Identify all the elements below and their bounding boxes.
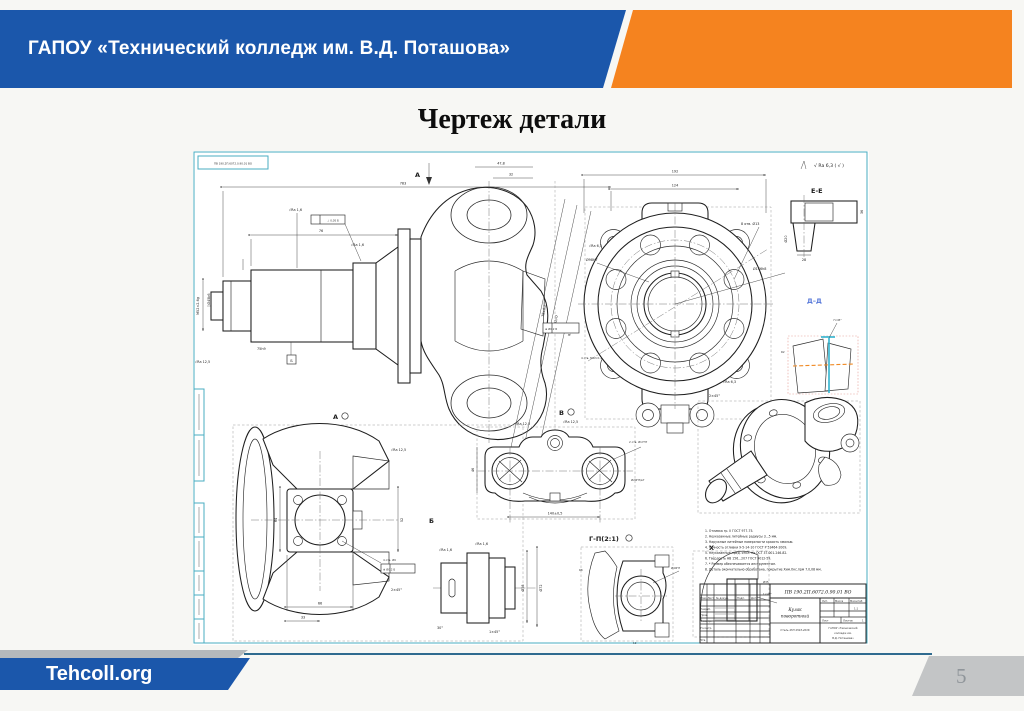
tb-tkontr: Т.контр. bbox=[701, 619, 712, 623]
note-line: 3. Наружные литейные поверхности красить… bbox=[705, 540, 793, 544]
dim-label: 28 bbox=[802, 258, 806, 262]
dim-label: 52 bbox=[400, 518, 404, 522]
dim-label: 30° bbox=[437, 626, 443, 630]
tb-sheet: Лист bbox=[822, 619, 829, 623]
roughness-flag: √Ra 12,5 bbox=[563, 420, 578, 424]
tb-razrab: Разраб. bbox=[701, 607, 711, 611]
view-3d bbox=[698, 388, 860, 515]
roughness-flag: √Ra 1,6 bbox=[351, 243, 364, 247]
dim-label: 4 отв. Ø9 bbox=[383, 557, 396, 562]
dim-label: Ø98H7 bbox=[586, 257, 598, 262]
tb-podp: Подп. bbox=[737, 596, 745, 600]
tb-scale-value: 1:1 bbox=[854, 607, 859, 611]
dim-label: 140±0,5 bbox=[548, 512, 563, 516]
tb-part-name-2: поворотный bbox=[781, 614, 810, 619]
dim-label: Ø40Н7 bbox=[671, 565, 681, 570]
view-label-g: Г-П(2:1) bbox=[589, 535, 619, 543]
tb-lit: Лит. bbox=[822, 599, 828, 603]
view-label-e: Е-Е bbox=[811, 187, 823, 195]
dim-label: Ø146h8 bbox=[753, 266, 766, 271]
dim-label: М52×2-6g bbox=[196, 297, 200, 315]
dim-label: 192 bbox=[672, 170, 678, 174]
tb-prov: Пров. bbox=[701, 613, 709, 617]
dim-label: 66 bbox=[318, 602, 322, 606]
dim-label: 2×45° bbox=[391, 588, 402, 592]
tb-data: Дата bbox=[751, 596, 758, 600]
roughness-flag: √Ra 6,3 bbox=[723, 380, 736, 384]
note-line: 2. Неуказанные литейные радиусы 3...5 мм… bbox=[705, 535, 777, 539]
dim-label: 47,8 bbox=[497, 162, 505, 166]
dim-label: Ø35 bbox=[763, 579, 769, 584]
dim-label: 32 bbox=[509, 173, 513, 177]
view-label-v: В bbox=[559, 409, 564, 417]
dim-label: 124 bbox=[672, 184, 678, 188]
notes-block: 1. Отливка гр. II ГОСТ 977-75. 2. Неуказ… bbox=[705, 529, 822, 572]
page-number: 5 bbox=[912, 664, 967, 689]
dim-label: 8 отв. Ø13 bbox=[741, 221, 759, 226]
dim-label: 76 bbox=[319, 229, 323, 233]
tb-org-3: В.Д. Поташова» bbox=[832, 636, 854, 640]
tb-list: Лист bbox=[708, 596, 715, 600]
tb-mass: Масса bbox=[835, 599, 844, 603]
dim-label: 1×45° bbox=[763, 592, 772, 596]
note-line: 8. Деталь окончательно обработана, покры… bbox=[705, 568, 822, 572]
roughness-flag: √Ra 1,6 bbox=[439, 548, 452, 552]
tolerance-frame: ⊕ Ø0,2 Б bbox=[383, 567, 395, 572]
note-line: 4. Точность отливки 9-5-14-10 ГОСТ Р 534… bbox=[705, 546, 787, 550]
roughness-flag: √Ra 12,5 bbox=[515, 422, 530, 426]
view-detail-dd: Д–Д 7×45° R2 bbox=[781, 297, 858, 394]
dim-label: 75h9 bbox=[257, 347, 266, 351]
dim-label: Ø72 bbox=[538, 585, 543, 592]
header-banner: ГАПОУ «Технический колледж им. В.Д. Пота… bbox=[0, 10, 626, 88]
dim-label: 2 отв. Ø17Н7 bbox=[629, 439, 648, 444]
tb-dok: № докум. bbox=[716, 597, 729, 600]
tolerance-frame: ⊕ Ø0,2 Б bbox=[545, 326, 557, 331]
view-b: Б √Ra 1,6 √Ra 1,6 Ø58 Ø72 1×45° 30° bbox=[429, 517, 543, 634]
tb-material: Сталь 45Л 4543-2016 bbox=[780, 628, 809, 632]
dim-label: 36 bbox=[860, 210, 864, 214]
dim-label: 1×45° bbox=[489, 630, 500, 634]
view-shaft: 783 76 47,8 32 М52×2-6g Ø45k6 √Ra 1,6 ⊥ … bbox=[195, 162, 611, 384]
roughness-flag: √Ra 6,3 bbox=[589, 244, 602, 248]
footer-site-link[interactable]: Tehcoll.org bbox=[0, 663, 152, 686]
view-flange: 192 124 8 отв. Ø13 Ø146h8 √Ra 6,3 √Ra 6,… bbox=[578, 170, 785, 434]
header-accent-shape bbox=[605, 10, 1012, 88]
note-line: 7. * Размер обеспечивается инструментом. bbox=[705, 562, 776, 566]
tb-izm: Изм. bbox=[701, 596, 707, 600]
drawing-sheet: ПВ 190.2П.6072.0.90.01 ВО √ Ra 6,3 ( √ ) bbox=[193, 151, 869, 645]
dim-label: 2×45° bbox=[709, 394, 720, 398]
tb-org-2: колледж им. bbox=[834, 632, 852, 635]
dim-label: Ø58 bbox=[520, 585, 525, 592]
view-label-d: Д–Д bbox=[807, 297, 822, 305]
view-label-a2: А bbox=[333, 413, 338, 421]
slide: ГАПОУ «Технический колледж им. В.Д. Пота… bbox=[0, 0, 1024, 711]
view-g: Г-П(2:1) Ø40Н7 R8 12 bbox=[579, 535, 681, 645]
footer-divider-line bbox=[244, 653, 932, 655]
dim-label: Ø20 bbox=[783, 236, 788, 243]
tb-doc-number: ПВ 190.2П.6072.0.90.01 ВО bbox=[784, 590, 852, 596]
roughness-flag: √Ra 1,6 bbox=[475, 542, 488, 546]
page-title: Чертеж детали bbox=[0, 104, 1024, 136]
dim-label: 7×45° bbox=[833, 318, 842, 322]
tolerance-frame: ⊥ 0,05 Б bbox=[327, 219, 339, 223]
note-line: 1. Отливка гр. II ГОСТ 977-75. bbox=[705, 529, 753, 533]
view-section-ee: Е-Е 28 Ø20 36 bbox=[783, 187, 864, 262]
tb-utv: Утв. bbox=[701, 638, 707, 642]
tb-nkontr: Н.контр. bbox=[701, 626, 713, 630]
tb-org-1: ГАПОУ «Технический bbox=[829, 626, 858, 630]
dim-label: 783 bbox=[400, 182, 406, 186]
view-label-a: А bbox=[415, 171, 420, 179]
roughness-flag: √Ra 12,5 bbox=[391, 448, 406, 452]
dim-label: R8 bbox=[579, 568, 583, 572]
dim-label: 46 bbox=[471, 468, 475, 472]
dim-label: R2 bbox=[781, 350, 785, 354]
dim-label: 12 bbox=[633, 641, 637, 645]
note-line: 5. Неуказанные пред. откл. по ОСТ 37.001… bbox=[705, 551, 787, 555]
dim-label: Ø20H7/в7 bbox=[631, 477, 645, 482]
view-section: 78±0,2 Ø52H7 R12 ⊕ Ø0,2 Б 4 отв. М12×1,2… bbox=[415, 163, 609, 457]
tb-part-name-1: Кулак bbox=[787, 607, 802, 612]
tb-sheets: Листов bbox=[843, 619, 853, 623]
part-drawing: ПВ 190.2П.6072.0.90.01 ВО √ Ra 6,3 ( √ ) bbox=[193, 151, 869, 645]
sheet-stamp: ПВ 190.2П.6072.0.90.01 ВО bbox=[214, 162, 252, 166]
footer-banner: Tehcoll.org bbox=[0, 658, 250, 690]
tb-scale: Масштаб bbox=[850, 599, 863, 603]
roughness-flag: √Ra 1,6 bbox=[289, 208, 302, 212]
dim-label: 64 bbox=[274, 518, 278, 522]
org-name: ГАПОУ «Технический колледж им. В.Д. Пота… bbox=[0, 38, 510, 60]
page-number-badge: 5 bbox=[912, 656, 1024, 696]
roughness-corner: √ Ra 6,3 ( √ ) bbox=[814, 163, 844, 169]
view-label-b: Б bbox=[429, 517, 434, 525]
dim-label: 33 bbox=[301, 616, 305, 620]
roughness-flag: √Ra 12,5 bbox=[195, 360, 210, 364]
tb-sheet-no: 1 bbox=[862, 619, 864, 623]
dim-label: Ø45k6 bbox=[206, 293, 211, 304]
note-line: 6. Твёрдость НВ 156...207 ГОСТ 9012-59. bbox=[705, 557, 771, 561]
footer-gray-stripe bbox=[0, 650, 248, 658]
